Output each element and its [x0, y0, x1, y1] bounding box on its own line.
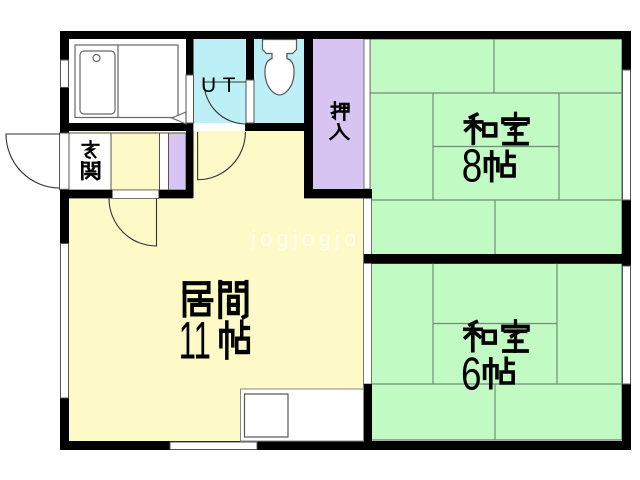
svg-text:6: 6: [461, 348, 482, 400]
svg-text:jogjogjo: jogjogjo: [250, 226, 360, 251]
svg-text:11: 11: [179, 312, 211, 371]
svg-text:8: 8: [462, 140, 483, 192]
svg-text:UT: UT: [201, 74, 242, 97]
